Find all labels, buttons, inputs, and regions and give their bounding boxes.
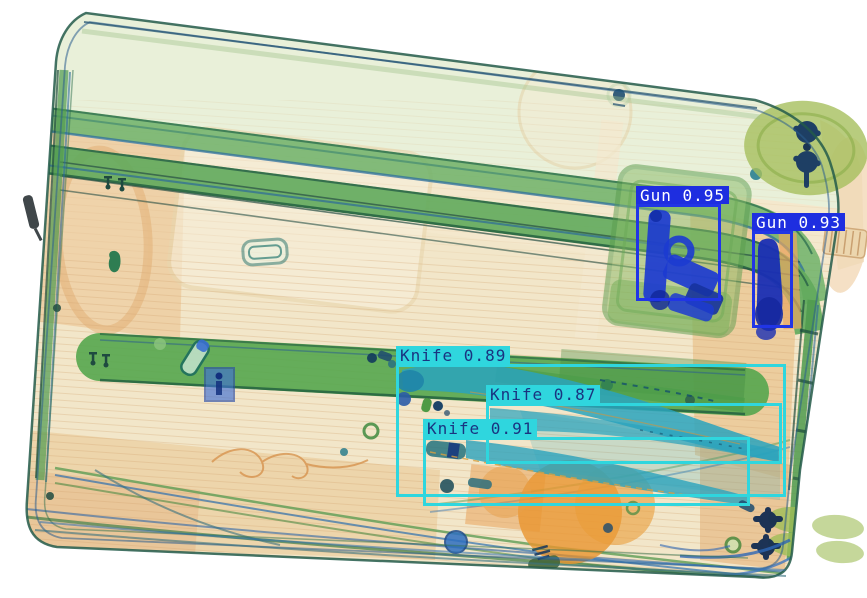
detection-box-gun-0-95: Gun 0.95: [636, 204, 721, 301]
detection-label: Knife 0.91: [423, 419, 537, 437]
xray-screenshot: Gun 0.95Gun 0.93Knife 0.89Knife 0.87Knif…: [0, 0, 867, 598]
detection-label: Knife 0.87: [486, 385, 600, 403]
detection-box-gun-0-93: Gun 0.93: [752, 231, 793, 328]
detections-layer: Gun 0.95Gun 0.93Knife 0.89Knife 0.87Knif…: [0, 0, 867, 598]
detection-label: Knife 0.89: [396, 346, 510, 364]
detection-box-knife-0-91: Knife 0.91: [423, 437, 750, 506]
detection-label: Gun 0.93: [752, 213, 845, 231]
detection-label: Gun 0.95: [636, 186, 729, 204]
